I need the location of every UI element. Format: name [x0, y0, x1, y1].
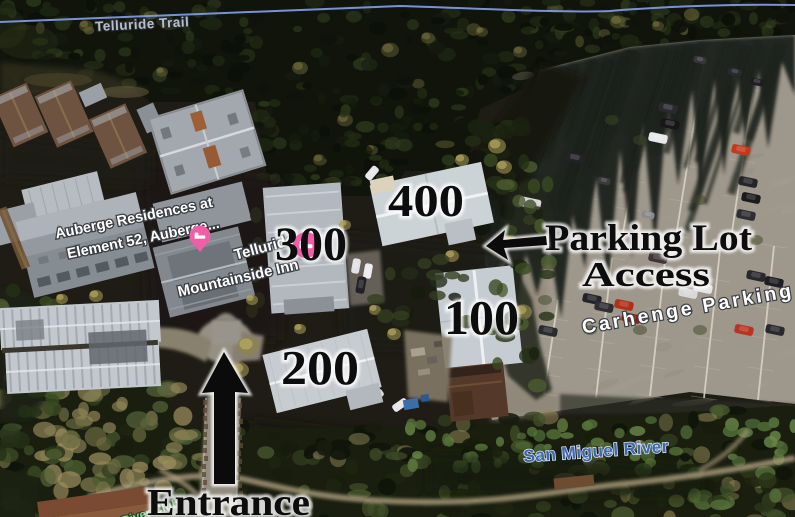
svg-text:Access: Access — [582, 255, 710, 294]
svg-text:Entrance: Entrance — [147, 482, 310, 517]
svg-text:100: 100 — [444, 290, 519, 345]
svg-text:400: 400 — [388, 176, 464, 226]
svg-text:Parking Lot: Parking Lot — [545, 217, 752, 258]
svg-text:200: 200 — [281, 340, 359, 395]
svg-text:300: 300 — [275, 219, 347, 271]
